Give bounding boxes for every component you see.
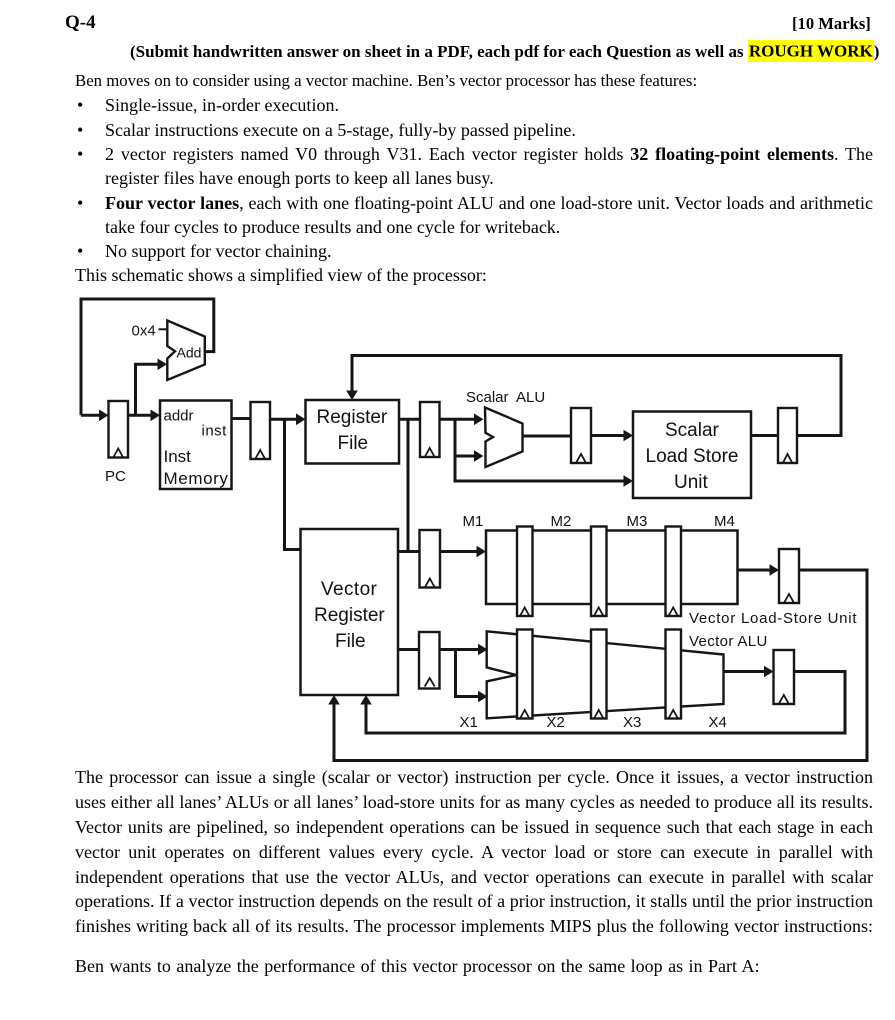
svg-text:Add: Add — [177, 345, 202, 361]
svg-text:M2: M2 — [551, 513, 572, 530]
svg-text:File: File — [335, 631, 366, 652]
svg-text:M3: M3 — [627, 513, 648, 530]
svg-text:File: File — [338, 433, 369, 454]
svg-text:Vector ALU: Vector ALU — [689, 633, 768, 650]
svg-text:0x4: 0x4 — [132, 323, 156, 340]
svg-text:Unit: Unit — [674, 472, 709, 493]
svg-text:Inst: Inst — [164, 447, 192, 466]
svg-text:Register: Register — [314, 605, 385, 626]
svg-text:Load Store: Load Store — [646, 446, 739, 467]
svg-text:inst: inst — [202, 423, 228, 440]
svg-text:X1: X1 — [460, 714, 478, 731]
svg-text:Memory: Memory — [164, 469, 229, 488]
svg-text:M1: M1 — [463, 513, 484, 530]
svg-text:Register: Register — [317, 407, 388, 428]
svg-text:PC: PC — [105, 468, 126, 485]
svg-text:Scalar ALU: Scalar ALU — [466, 389, 545, 406]
svg-text:Vector: Vector — [321, 579, 378, 600]
svg-text:X3: X3 — [623, 714, 641, 731]
svg-text:X2: X2 — [547, 714, 565, 731]
svg-text:addr: addr — [164, 408, 194, 425]
svg-text:Vector Load-Store Unit: Vector Load-Store Unit — [689, 610, 857, 627]
svg-text:M4: M4 — [714, 513, 735, 530]
svg-text:X4: X4 — [709, 714, 727, 731]
svg-text:Scalar: Scalar — [665, 420, 720, 441]
